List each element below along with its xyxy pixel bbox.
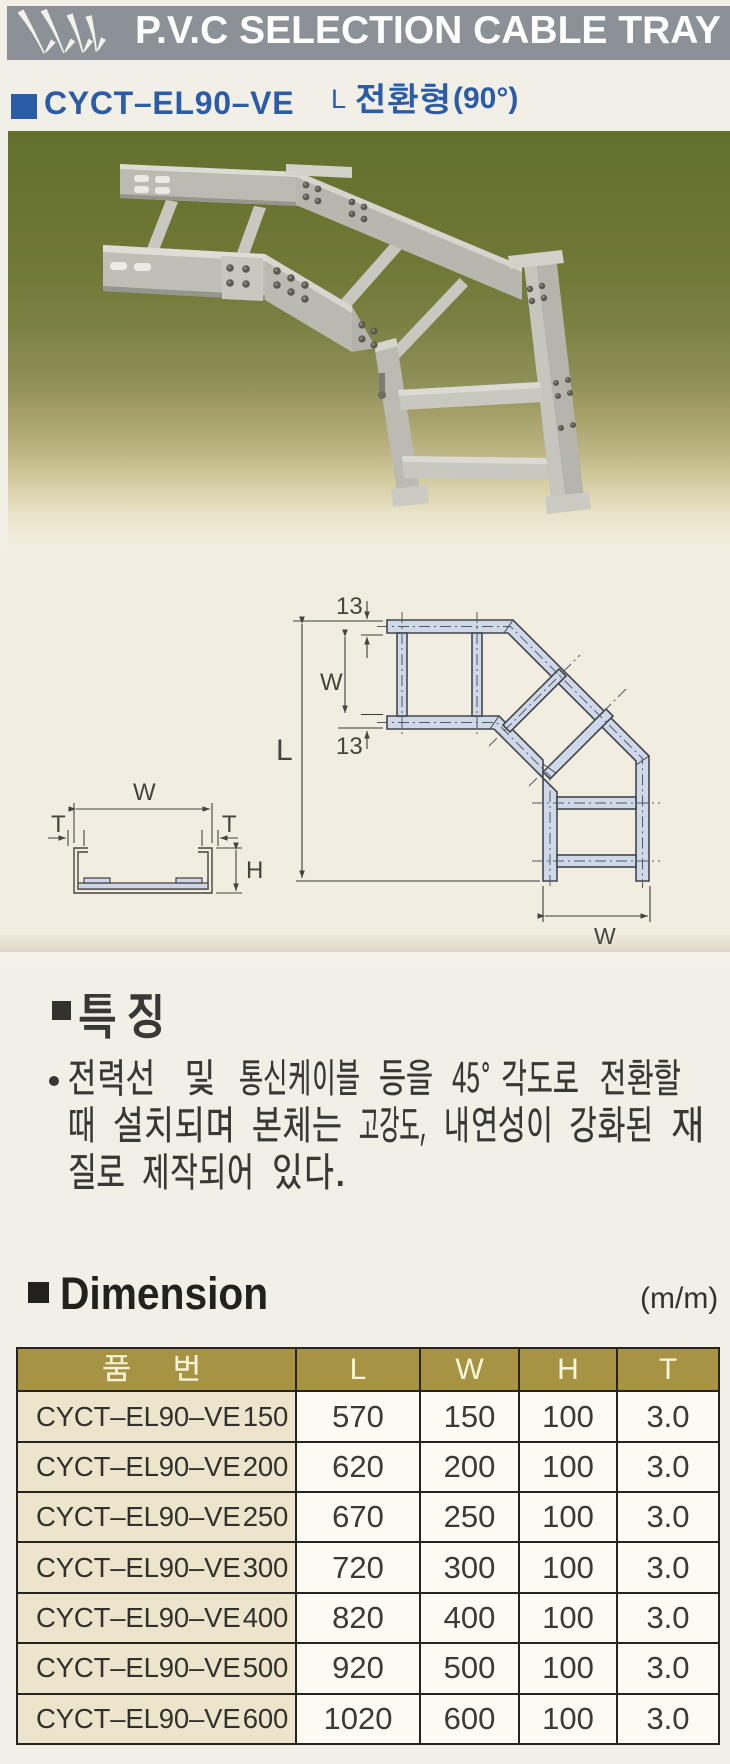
svg-text:T: T <box>51 811 66 838</box>
svg-text:L: L <box>276 734 293 767</box>
svg-text:13: 13 <box>336 733 363 760</box>
svg-text:W: W <box>594 923 616 949</box>
svg-text:13: 13 <box>336 593 363 620</box>
svg-text:W: W <box>133 779 156 806</box>
svg-text:H: H <box>246 857 263 884</box>
svg-text:W: W <box>320 669 343 696</box>
svg-text:T: T <box>222 811 237 838</box>
